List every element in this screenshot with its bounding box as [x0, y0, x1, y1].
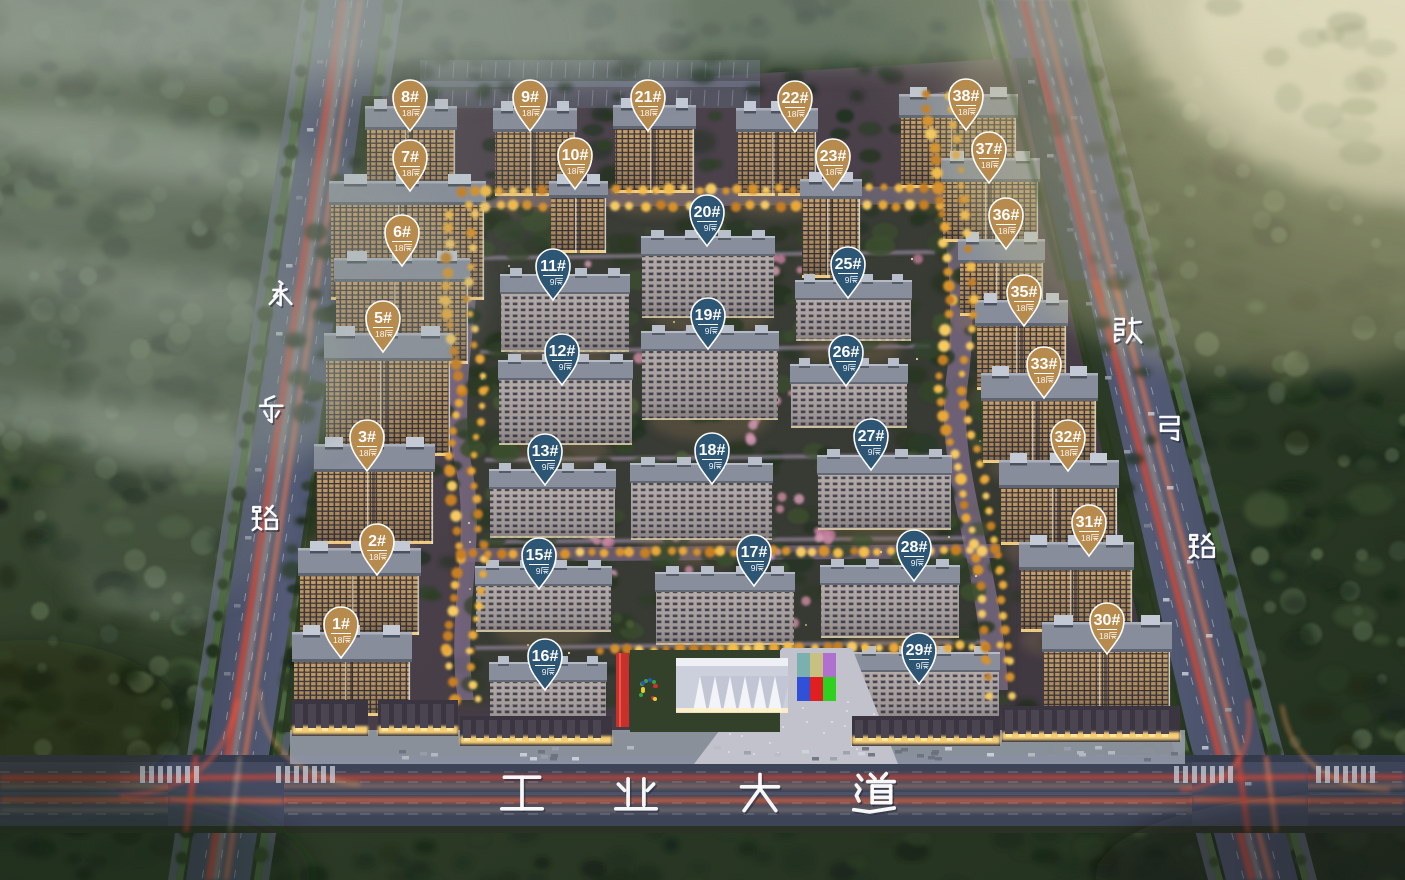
svg-text:35#: 35#	[1011, 284, 1038, 301]
svg-text:25#: 25#	[835, 256, 862, 273]
svg-text:20#: 20#	[694, 204, 721, 221]
svg-text:30#: 30#	[1094, 612, 1121, 629]
svg-text:9: 9	[704, 223, 709, 233]
svg-text:13#: 13#	[532, 443, 559, 460]
svg-text:9: 9	[868, 447, 873, 457]
svg-text:18: 18	[825, 167, 835, 177]
svg-text:18: 18	[567, 166, 577, 176]
svg-text:9: 9	[536, 566, 541, 576]
svg-text:18: 18	[1016, 303, 1026, 313]
svg-text:9: 9	[751, 563, 756, 573]
svg-text:9#: 9#	[521, 89, 539, 106]
svg-text:7#: 7#	[401, 149, 419, 166]
svg-text:19#: 19#	[695, 307, 722, 324]
svg-text:10#: 10#	[562, 147, 589, 164]
svg-text:5#: 5#	[374, 310, 392, 327]
svg-text:18: 18	[1099, 631, 1109, 641]
svg-text:18: 18	[375, 329, 385, 339]
svg-text:31#: 31#	[1076, 514, 1103, 531]
svg-text:9: 9	[542, 667, 547, 677]
svg-text:29#: 29#	[906, 642, 933, 659]
svg-text:6#: 6#	[393, 224, 411, 241]
svg-text:9: 9	[843, 363, 848, 373]
svg-text:11#: 11#	[540, 258, 566, 275]
svg-text:18: 18	[522, 108, 532, 118]
svg-text:9: 9	[911, 558, 916, 568]
svg-text:18: 18	[998, 226, 1008, 236]
svg-text:3#: 3#	[358, 429, 376, 446]
svg-text:36#: 36#	[993, 207, 1020, 224]
svg-text:37#: 37#	[976, 141, 1003, 158]
svg-text:9: 9	[705, 326, 710, 336]
svg-text:27#: 27#	[858, 428, 885, 445]
svg-text:28#: 28#	[901, 539, 928, 556]
svg-text:9: 9	[845, 275, 850, 285]
svg-text:23#: 23#	[820, 148, 847, 165]
svg-text:18: 18	[1060, 448, 1070, 458]
svg-text:9: 9	[709, 461, 714, 471]
svg-text:18: 18	[1036, 375, 1046, 385]
svg-text:18: 18	[640, 108, 650, 118]
svg-text:18#: 18#	[699, 442, 726, 459]
svg-text:8#: 8#	[401, 89, 419, 106]
svg-text:18: 18	[787, 109, 797, 119]
svg-text:26#: 26#	[833, 344, 860, 361]
svg-text:1#: 1#	[332, 616, 350, 633]
svg-text:18: 18	[1081, 533, 1091, 543]
svg-text:22#: 22#	[782, 90, 809, 107]
svg-text:38#: 38#	[953, 88, 980, 105]
svg-text:32#: 32#	[1055, 429, 1082, 446]
svg-text:18: 18	[402, 168, 412, 178]
svg-text:21#: 21#	[635, 89, 662, 106]
svg-text:9: 9	[542, 462, 547, 472]
svg-text:18: 18	[394, 243, 404, 253]
svg-text:18: 18	[333, 635, 343, 645]
svg-text:18: 18	[369, 552, 379, 562]
svg-text:9: 9	[559, 362, 564, 372]
svg-text:15#: 15#	[526, 547, 553, 564]
svg-text:18: 18	[359, 448, 369, 458]
svg-text:18: 18	[981, 160, 991, 170]
svg-text:17#: 17#	[741, 544, 768, 561]
svg-text:2#: 2#	[368, 533, 386, 550]
svg-text:9: 9	[550, 277, 555, 287]
svg-text:18: 18	[958, 107, 968, 117]
svg-text:16#: 16#	[532, 648, 559, 665]
svg-text:33#: 33#	[1031, 356, 1058, 373]
svg-text:9: 9	[916, 661, 921, 671]
svg-text:18: 18	[402, 108, 412, 118]
svg-text:12#: 12#	[549, 343, 576, 360]
